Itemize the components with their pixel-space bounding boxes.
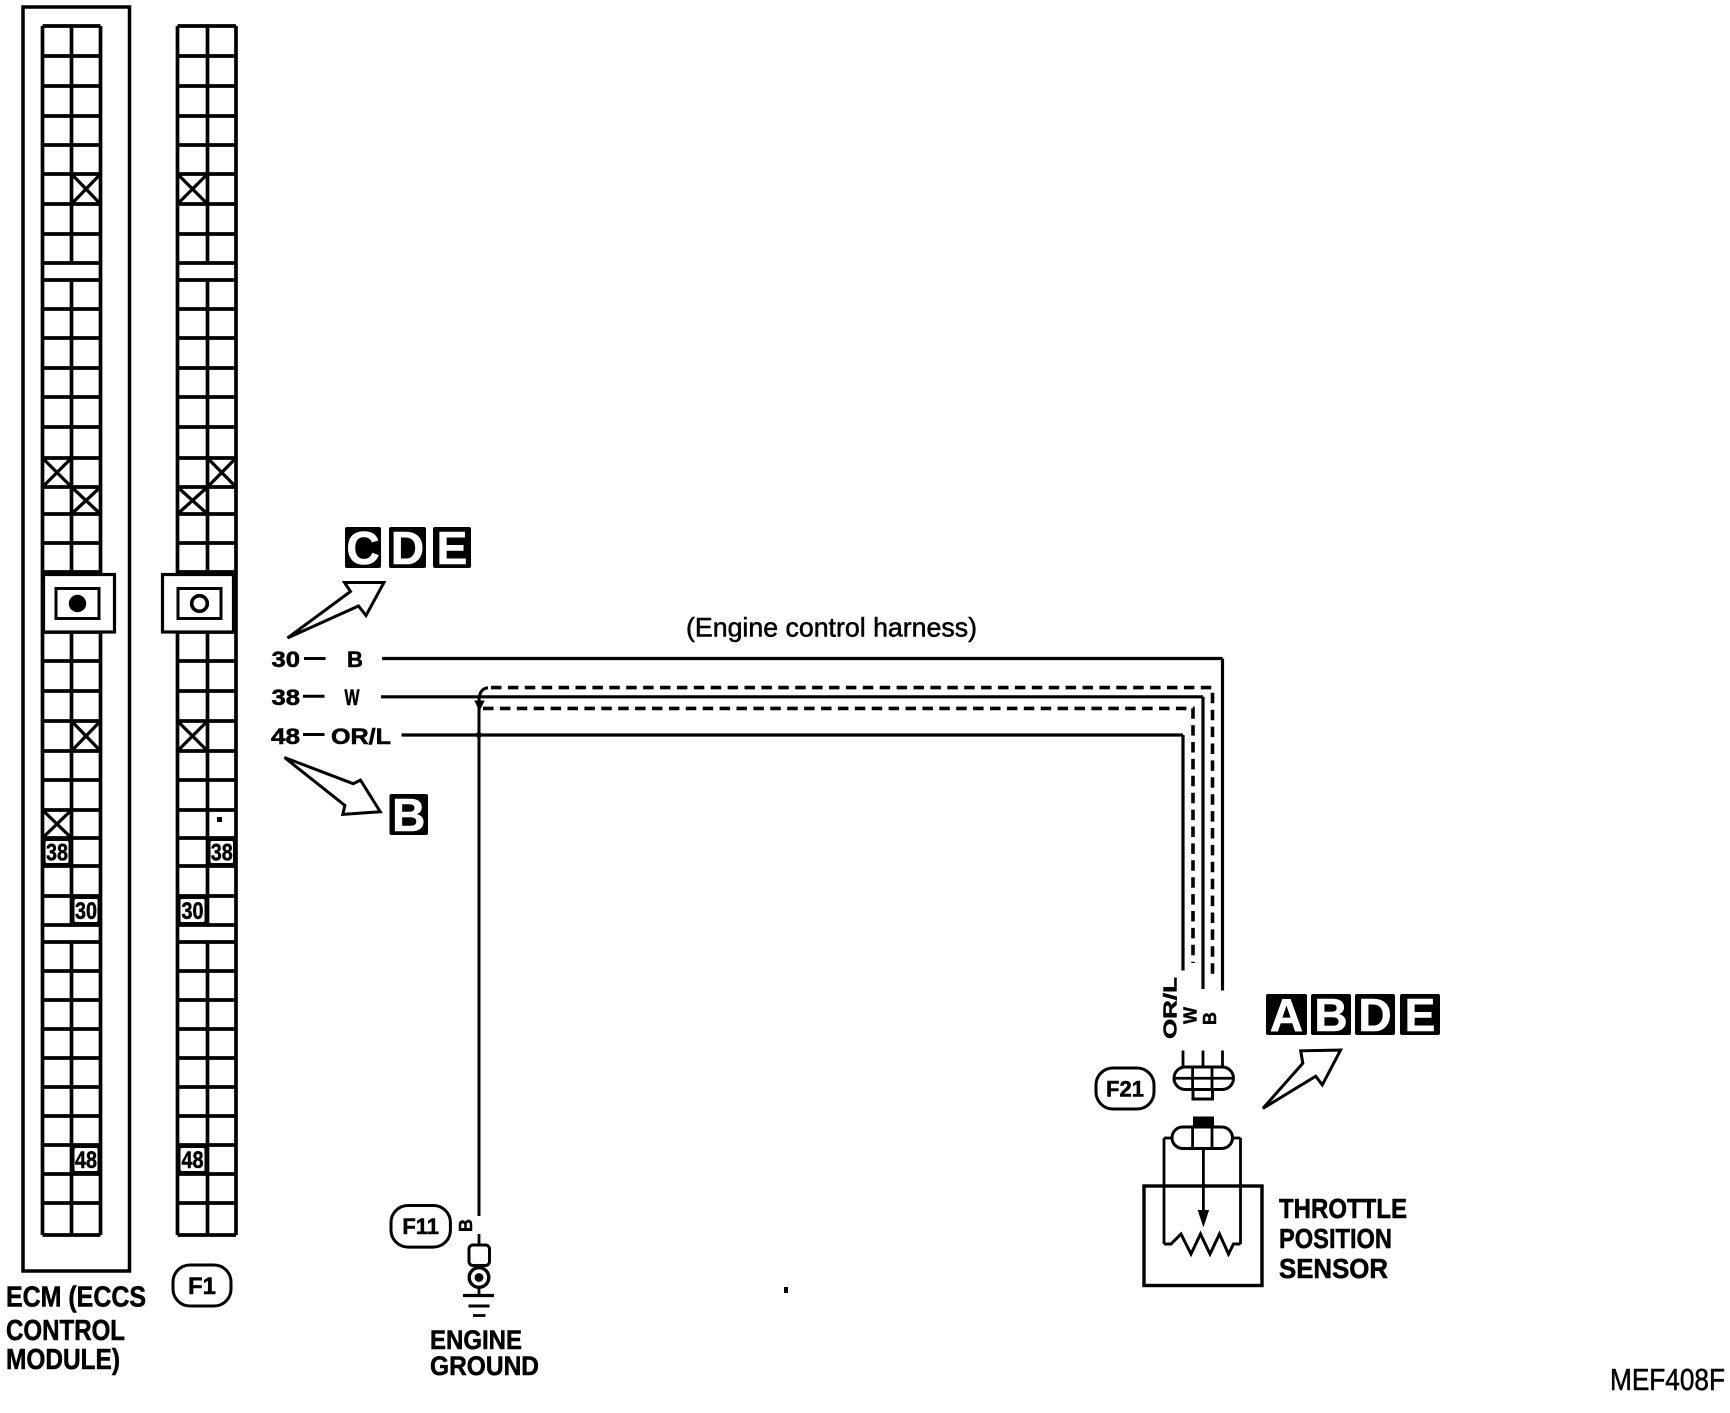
svg-text:GROUND: GROUND <box>430 1351 539 1381</box>
svg-text:48: 48 <box>75 1147 97 1174</box>
svg-text:OR/L: OR/L <box>1161 977 1181 1039</box>
svg-text:SENSOR: SENSOR <box>1279 1253 1388 1284</box>
svg-text:F21: F21 <box>1106 1076 1144 1101</box>
svg-text:A: A <box>1270 989 1303 1041</box>
svg-text:D: D <box>1358 989 1391 1041</box>
svg-text:30: 30 <box>272 647 301 672</box>
svg-text:38: 38 <box>211 840 233 867</box>
svg-text:THROTTLE: THROTTLE <box>1279 1193 1407 1224</box>
svg-text:CONTROL: CONTROL <box>6 1315 125 1347</box>
svg-text:W: W <box>345 685 360 710</box>
svg-text:ECM (ECCS: ECM (ECCS <box>6 1282 146 1314</box>
svg-text:B: B <box>1200 1012 1220 1025</box>
svg-text:B: B <box>392 789 425 841</box>
svg-text:MEF408F: MEF408F <box>1610 1362 1725 1397</box>
svg-text:MODULE): MODULE) <box>6 1344 120 1376</box>
svg-text:(Engine control harness): (Engine control harness) <box>686 613 977 643</box>
svg-text:48: 48 <box>271 724 300 749</box>
svg-text:B: B <box>347 647 363 672</box>
svg-text:30: 30 <box>75 898 97 925</box>
svg-text:30: 30 <box>182 898 204 925</box>
svg-text:38: 38 <box>46 840 68 867</box>
svg-text:48: 48 <box>182 1147 204 1174</box>
svg-text:B: B <box>1314 989 1347 1041</box>
svg-text:B: B <box>456 1219 476 1232</box>
svg-text:OR/L: OR/L <box>331 724 391 749</box>
svg-text:W: W <box>1181 1007 1201 1024</box>
svg-text:C: C <box>346 522 379 574</box>
svg-text:E: E <box>437 522 468 574</box>
svg-text:E: E <box>1405 989 1436 1041</box>
svg-text:F11: F11 <box>402 1214 439 1239</box>
svg-text:POSITION: POSITION <box>1279 1223 1392 1254</box>
svg-text:F1: F1 <box>188 1273 216 1300</box>
svg-text:D: D <box>391 522 424 574</box>
svg-text:38: 38 <box>272 685 301 710</box>
